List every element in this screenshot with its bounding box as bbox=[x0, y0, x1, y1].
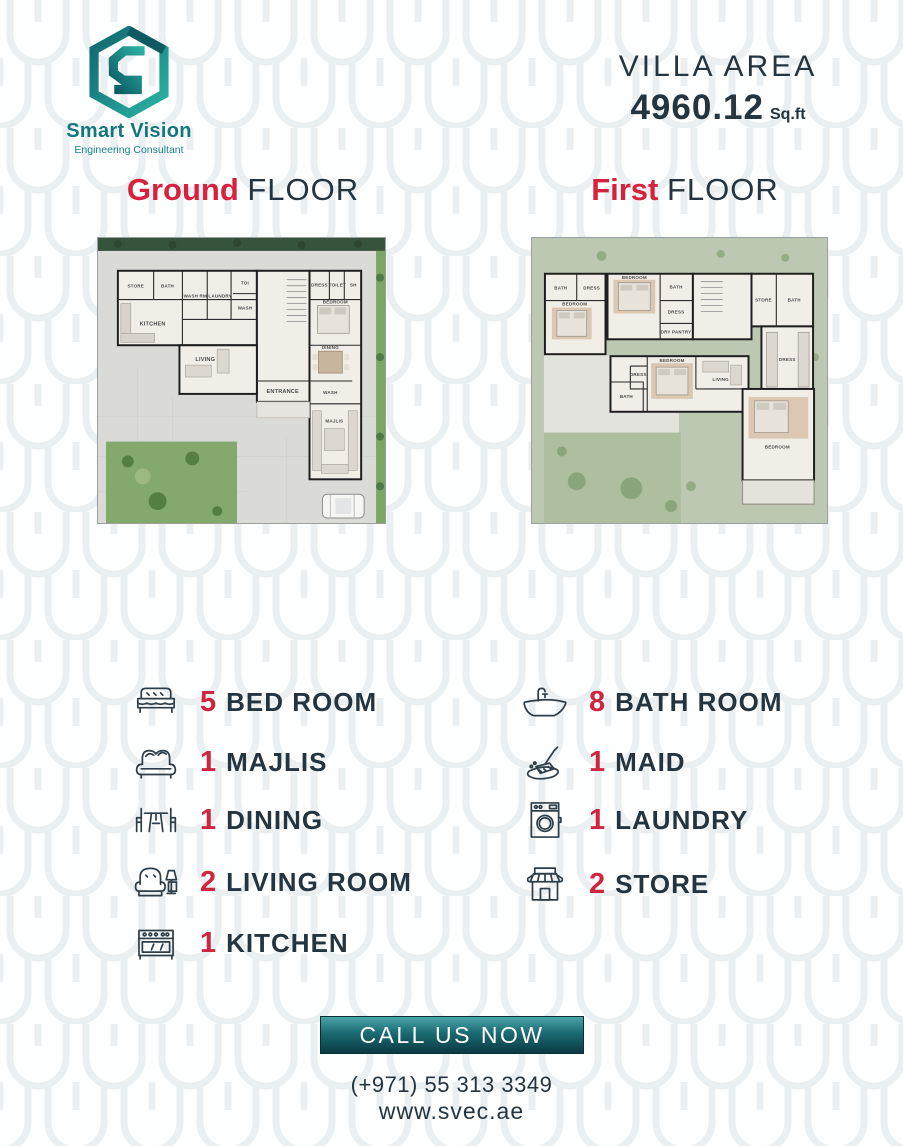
amenity-store: 2 STORE bbox=[515, 858, 709, 910]
smart-vision-logo-icon bbox=[81, 26, 177, 118]
room-label: BEDROOM bbox=[562, 302, 587, 307]
villa-area-label: VILLA AREA bbox=[583, 50, 853, 84]
amenity-label: DINING bbox=[226, 805, 323, 836]
room-label: LIVING bbox=[713, 377, 730, 382]
logo-name: Smart Vision bbox=[44, 120, 214, 143]
first-floor-plan: BATH DRESS BEDROOM BEDROOM BATH DRESS DR… bbox=[531, 237, 828, 524]
amenity-count: 8 bbox=[589, 686, 605, 719]
washing-machine-icon bbox=[515, 795, 575, 845]
room-label: LAUNDRY bbox=[208, 294, 231, 299]
amenity-label: STORE bbox=[615, 869, 709, 900]
room-label: STORE bbox=[755, 298, 772, 303]
room-label: BEDROOM bbox=[765, 445, 790, 450]
amenity-maid: 1 MAID bbox=[515, 736, 686, 788]
amenity-label: MAJLIS bbox=[226, 747, 327, 778]
call-us-now-button[interactable]: CALL US NOW bbox=[320, 1016, 584, 1054]
room-label: BEDROOM bbox=[622, 275, 647, 280]
stove-icon bbox=[126, 918, 186, 968]
amenity-label: BATH ROOM bbox=[615, 687, 782, 718]
room-label: BATH bbox=[161, 284, 174, 289]
room-label: BEDROOM bbox=[323, 300, 348, 305]
ground-floor-heading: Ground FLOOR bbox=[93, 172, 393, 208]
room-label: DRESS bbox=[630, 372, 647, 377]
room-label: WASH bbox=[238, 305, 252, 310]
amenity-count: 1 bbox=[200, 804, 216, 837]
room-label: DRESS bbox=[311, 283, 328, 288]
room-label: DRESS bbox=[668, 309, 685, 314]
villa-area-value: 4960.12 bbox=[630, 88, 764, 127]
amenity-label: KITCHEN bbox=[226, 928, 349, 959]
website-url: www.svec.ae bbox=[0, 1098, 903, 1125]
villa-area-unit: Sq.ft bbox=[770, 106, 806, 123]
armchair-icon bbox=[126, 857, 186, 907]
amenity-majlis: 1 MAJLIS bbox=[126, 736, 327, 788]
room-label: BATH bbox=[620, 394, 633, 399]
room-label: WASH bbox=[323, 390, 337, 395]
room-label: BATH bbox=[669, 285, 682, 290]
amenity-count: 5 bbox=[200, 686, 216, 719]
logo: Smart Vision Engineering Consultant bbox=[44, 26, 214, 156]
amenity-kitchen: 1 KITCHEN bbox=[126, 917, 349, 969]
amenity-label: LIVING ROOM bbox=[226, 867, 412, 898]
room-label: BATH bbox=[554, 286, 567, 291]
ground-floor-heading-accent: Ground bbox=[127, 172, 239, 207]
amenity-count: 2 bbox=[589, 868, 605, 901]
logo-tagline: Engineering Consultant bbox=[44, 144, 214, 156]
first-floor-heading-accent: First bbox=[591, 172, 658, 207]
amenity-count: 1 bbox=[200, 746, 216, 779]
sofa-icon bbox=[126, 737, 186, 787]
phone-number: (+971) 55 313 3349 bbox=[0, 1072, 903, 1098]
room-label: STORE bbox=[127, 284, 144, 289]
amenity-count: 1 bbox=[589, 804, 605, 837]
villa-area: VILLA AREA 4960.12Sq.ft bbox=[583, 50, 853, 128]
amenity-dining: 1 DINING bbox=[126, 794, 323, 846]
amenity-count: 2 bbox=[200, 866, 216, 899]
amenity-laundry: 1 LAUNDRY bbox=[515, 794, 748, 846]
bathtub-icon bbox=[515, 677, 575, 727]
room-label: BEDROOM bbox=[659, 358, 684, 363]
room-label: DRESS bbox=[583, 286, 600, 291]
room-label: DRY PANTRY bbox=[661, 329, 692, 334]
room-label: WASH RM bbox=[184, 294, 207, 299]
first-floor-heading: First FLOOR bbox=[535, 172, 835, 208]
bed-icon bbox=[126, 677, 186, 727]
dining-icon bbox=[126, 795, 186, 845]
ground-floor-plan: STORE BATH WASH RM LAUNDRY TOI WASH KITC… bbox=[97, 237, 386, 524]
room-label: MAJLIS bbox=[325, 419, 343, 424]
amenity-label: LAUNDRY bbox=[615, 805, 748, 836]
flyer-page: Smart Vision Engineering Consultant VILL… bbox=[0, 0, 903, 1146]
room-label: TOILET bbox=[329, 283, 346, 288]
room-label: ENTRANCE bbox=[267, 389, 300, 395]
amenity-label: BED ROOM bbox=[226, 687, 377, 718]
room-label: TOI bbox=[241, 281, 249, 286]
room-label: DRESS bbox=[779, 357, 796, 362]
room-label: LIVING bbox=[195, 357, 215, 363]
amenity-count: 1 bbox=[589, 746, 605, 779]
amenity-bath-room: 8 BATH ROOM bbox=[515, 676, 783, 728]
room-label: SH bbox=[350, 283, 357, 288]
amenity-label: MAID bbox=[615, 747, 685, 778]
room-label: DINING bbox=[322, 345, 339, 350]
amenity-count: 1 bbox=[200, 927, 216, 960]
store-icon bbox=[515, 859, 575, 909]
amenity-living-room: 2 LIVING ROOM bbox=[126, 856, 412, 908]
room-label: BATH bbox=[788, 298, 801, 303]
maid-icon bbox=[515, 737, 575, 787]
first-floor-heading-rest: FLOOR bbox=[667, 172, 779, 207]
ground-floor-heading-rest: FLOOR bbox=[247, 172, 359, 207]
room-label: KITCHEN bbox=[140, 321, 166, 327]
amenity-bed-room: 5 BED ROOM bbox=[126, 676, 377, 728]
